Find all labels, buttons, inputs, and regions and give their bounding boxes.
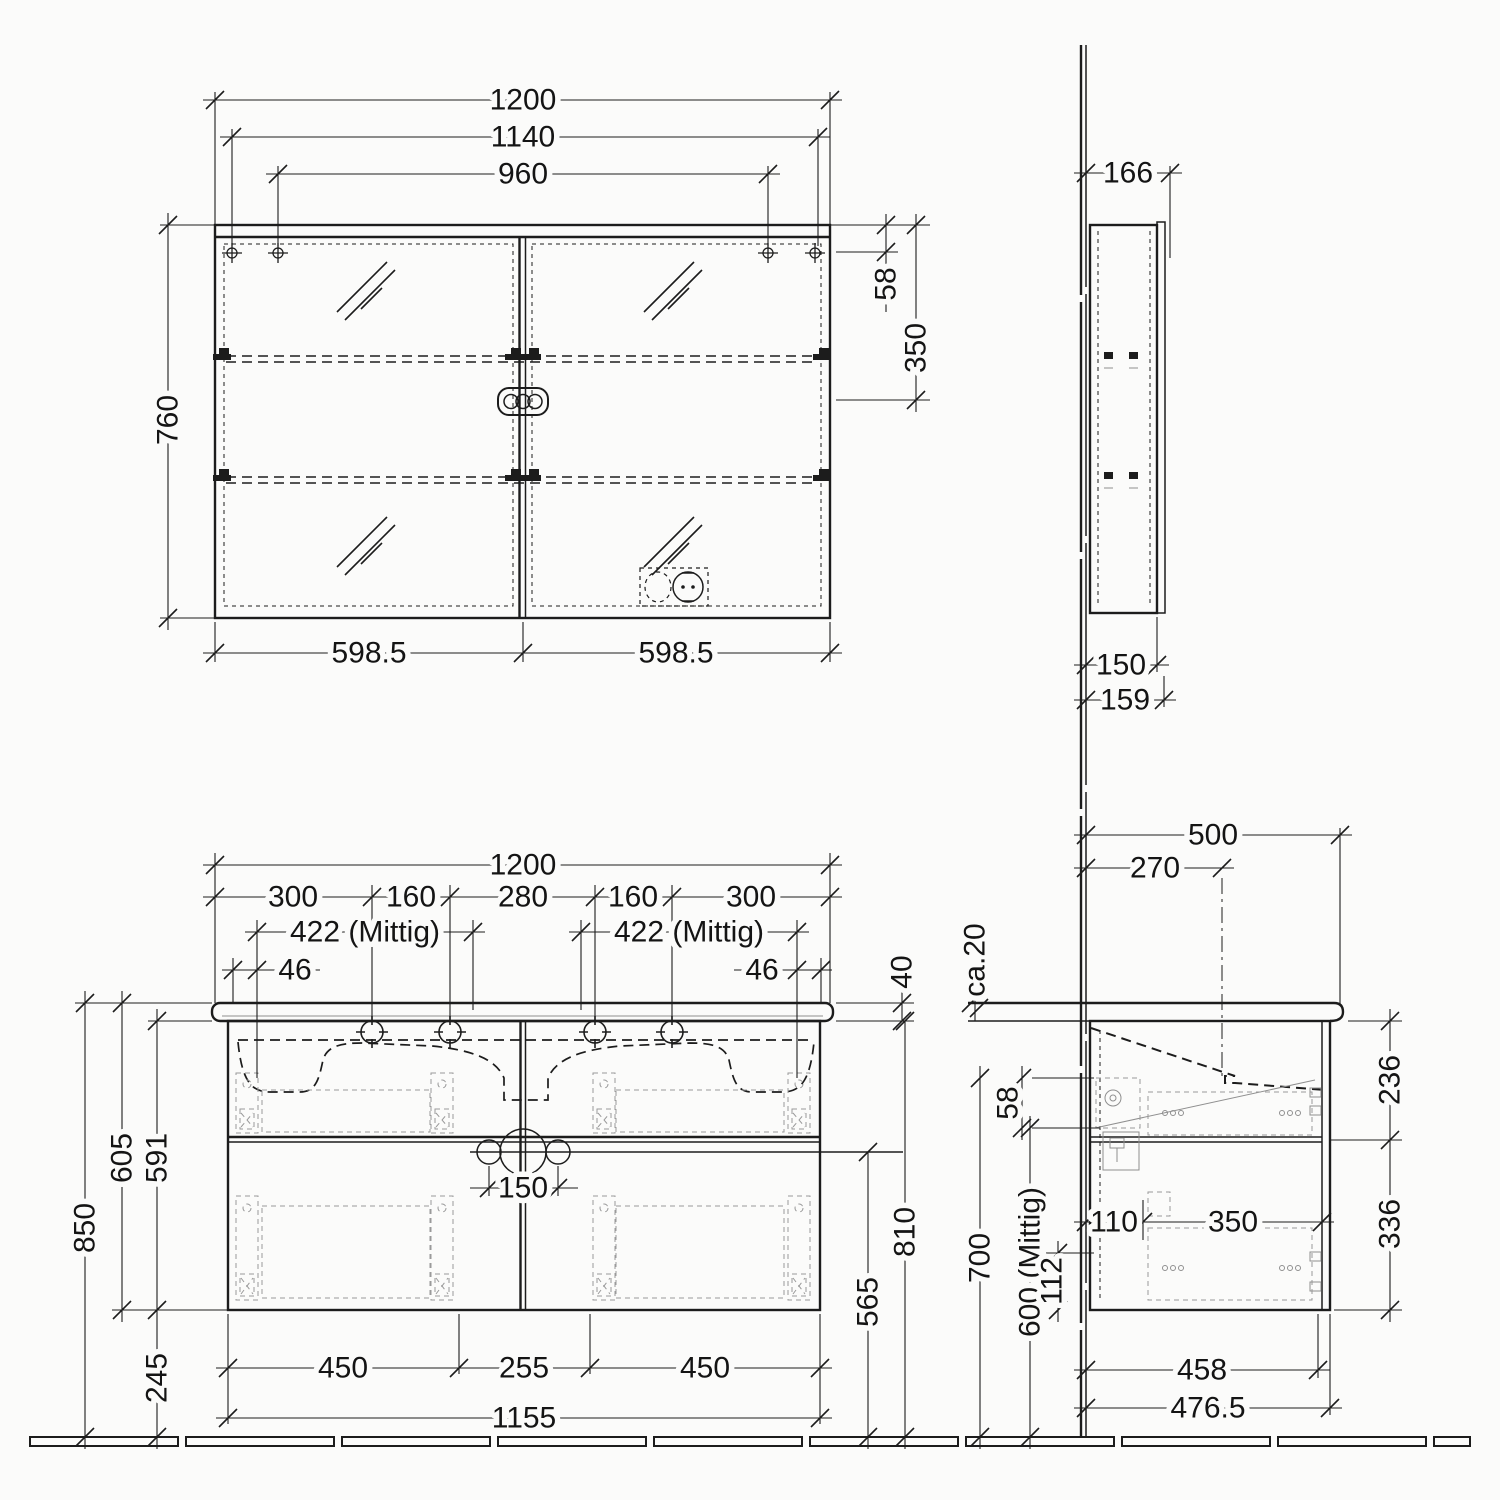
dim-label-mirror-960: 960 [498, 158, 548, 191]
dim-label-605: 605 [106, 1133, 139, 1183]
vanity-side-view: 500 270 ca.20 58 700 600 (Mittig) [959, 819, 1407, 1450]
dim-label-side-150: 150 [1096, 649, 1146, 682]
dim-label-591: 591 [141, 1133, 174, 1183]
dim-vanity-1155: 1155 [216, 1402, 832, 1435]
dim-label-450-right: 450 [680, 1352, 730, 1385]
dim-label-850: 850 [69, 1203, 102, 1253]
dim-label-mirror-1140: 1140 [491, 121, 556, 154]
dim-mirror-offset-58: 58 [830, 214, 930, 312]
dim-label-110: 110 [1090, 1206, 1138, 1239]
mirror-icon [644, 262, 702, 320]
dim-label-245: 245 [141, 1353, 174, 1403]
dim-label-458: 458 [1177, 1354, 1227, 1387]
dim-mirror-350: 350 [836, 214, 933, 412]
side-vanity-body [1090, 1021, 1330, 1310]
dim-label-500: 500 [1188, 819, 1238, 852]
dim-side-236: 236 [1330, 1009, 1407, 1152]
dim-side-700: 700 [964, 1066, 997, 1449]
drawer-slide-icon [788, 1196, 810, 1300]
dim-label-255: 255 [499, 1352, 549, 1385]
dim-vanity-245: 245 [141, 1322, 174, 1449]
dim-label-112: 112 [1036, 1257, 1069, 1305]
drawer-slide-icon [593, 1073, 615, 1133]
drawer-slide-icon [431, 1073, 453, 1133]
dim-siphon-150: 150 [470, 1166, 578, 1205]
dim-label-150: 150 [498, 1172, 548, 1205]
dim-label-160r: 160 [608, 881, 658, 914]
dim-label-mirror-1200: 1200 [490, 84, 557, 117]
dim-label-565: 565 [852, 1277, 885, 1327]
side-shelf-clips [1104, 352, 1138, 488]
dim-label-450-left: 450 [318, 1352, 368, 1385]
side-wall-bracket [1096, 1078, 1140, 1170]
dim-label-side-159: 159 [1100, 684, 1150, 717]
socket-outlet-symbol [640, 568, 708, 606]
dim-side-110-350: 110 350 [1074, 1200, 1334, 1240]
dim-vanity-565: 565 [852, 1143, 885, 1449]
side-drawer-slides [1148, 1088, 1321, 1300]
dim-label-mirror-350: 350 [900, 323, 933, 373]
dim-label-236: 236 [1374, 1055, 1407, 1105]
dim-side-500: 500 [1074, 819, 1352, 1007]
dim-label-1155: 1155 [492, 1402, 557, 1435]
dim-side-458: 458 [1074, 1314, 1330, 1387]
side-washbasin-slab [968, 1003, 1343, 1021]
mirror-cabinet-body [215, 225, 830, 618]
mirror-icon [644, 517, 702, 575]
dim-label-350: 350 [1208, 1206, 1258, 1239]
dim-label-270: 270 [1130, 852, 1180, 885]
dim-side-ca20: ca.20 [959, 923, 992, 1021]
dim-vanity-mittig-row: 422 (Mittig) 422 (Mittig) [245, 916, 809, 1079]
dim-label-mittig-left: 422 (Mittig) [290, 916, 440, 949]
dim-vanity-46-row: 46 46 [222, 954, 832, 1004]
mirror-cabinet-side-view: 166 150 159 [1074, 157, 1182, 717]
dim-label-mittig-right: 422 (Mittig) [614, 916, 764, 949]
dim-vanity-40: 40 [836, 952, 919, 1030]
vanity-front-view: 1200 300 160 280 160 300 422 (Mittig) [69, 849, 922, 1450]
shelf-clip-icon [813, 469, 831, 481]
mirror-cabinet-front-view: 1200 1140 960 760 58 [152, 84, 933, 670]
drawer-slide-icon [593, 1196, 615, 1300]
dim-vanity-810: 810 [889, 1012, 922, 1449]
dim-label-336: 336 [1374, 1199, 1407, 1249]
dim-vanity-segments-row: 300 160 280 160 300 [203, 881, 842, 1022]
wall-line [1081, 45, 1086, 1437]
floor-hatching [30, 1437, 1470, 1446]
dim-label-700: 700 [964, 1233, 997, 1283]
dim-label-280: 280 [498, 881, 548, 914]
dim-mirror-width-960: 960 [266, 158, 780, 247]
drawer-slide-icon [788, 1073, 810, 1133]
dim-label-160l: 160 [386, 881, 436, 914]
dim-label-46-left: 46 [278, 954, 311, 987]
dim-label-mirror-760: 760 [152, 395, 185, 445]
dim-label-door-right: 598.5 [638, 637, 713, 670]
mirror-icon [337, 517, 395, 575]
technical-drawing: 1200 1140 960 760 58 [0, 0, 1500, 1500]
dim-side-58: 58 [992, 1066, 1101, 1140]
shelf-clip-icon [505, 348, 523, 360]
dim-label-810: 810 [889, 1207, 922, 1257]
vanity-body [228, 1021, 820, 1310]
dim-label-mirror-58: 58 [870, 267, 903, 300]
dim-label-476: 476.5 [1170, 1392, 1245, 1425]
light-switch-block [498, 388, 548, 415]
dim-label-300r: 300 [726, 881, 776, 914]
dim-label-ca20: ca.20 [959, 923, 992, 996]
dim-mirror-width-1200: 1200 [203, 84, 842, 226]
dim-label-vanity-1200: 1200 [490, 849, 557, 882]
mirror-icon [337, 262, 395, 320]
dim-label-40: 40 [886, 955, 919, 988]
screw-icon [805, 243, 825, 263]
dim-label-46-right: 46 [745, 954, 778, 987]
drawer-slide-icon [236, 1196, 258, 1300]
drawer-slide-icon [236, 1073, 258, 1133]
dim-side-159: 159 [1074, 676, 1176, 717]
dim-vanity-591: 591 [141, 1009, 213, 1322]
dim-side-150: 150 [1074, 617, 1169, 682]
dim-mirror-doors-598: 598.5 598.5 [203, 622, 842, 670]
dim-label-side-166: 166 [1103, 157, 1153, 190]
dim-side-270: 270 [1074, 852, 1234, 885]
dim-label-side-58: 58 [992, 1086, 1025, 1119]
washbasin-slab [212, 1003, 833, 1021]
shelf-clip-icon [505, 469, 523, 481]
dim-label-door-left: 598.5 [331, 637, 406, 670]
drawer-slide-icon [431, 1196, 453, 1300]
dim-mirror-height-760: 760 [152, 213, 216, 630]
dim-label-300l: 300 [268, 881, 318, 914]
dim-side-336: 336 [1334, 1152, 1407, 1322]
side-cabinet-body [1090, 225, 1157, 613]
shelf-clip-icon [813, 348, 831, 360]
mounting-screws [222, 243, 825, 263]
drawing-page: 1200 1140 960 760 58 [0, 0, 1500, 1500]
